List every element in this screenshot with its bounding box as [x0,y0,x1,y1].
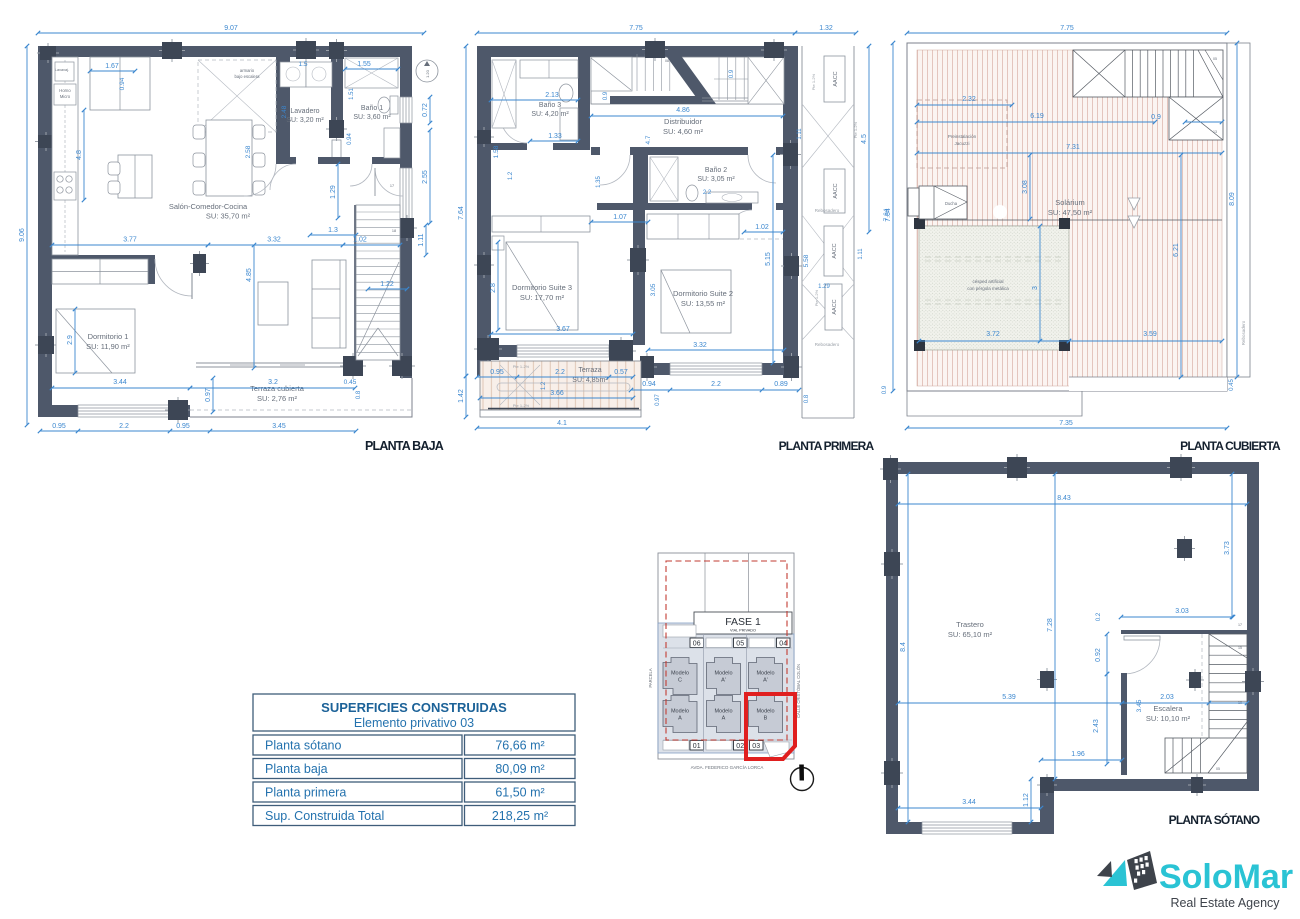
svg-text:Real Estate Agency: Real Estate Agency [1170,896,1280,910]
svg-text:0.94: 0.94 [642,381,656,388]
svg-text:4.86: 4.86 [676,107,690,114]
svg-text:1.33: 1.33 [548,133,562,140]
svg-text:1.42: 1.42 [458,389,465,403]
svg-text:1.2: 1.2 [541,381,547,390]
svg-text:0.8: 0.8 [804,394,810,403]
svg-text:3.67: 3.67 [556,326,570,333]
svg-text:CALLE CRISTÓBAL COLÓN: CALLE CRISTÓBAL COLÓN [796,664,801,718]
svg-text:AACC: AACC [832,243,838,258]
svg-text:3.59: 3.59 [1143,331,1157,338]
svg-text:2.8: 2.8 [490,283,497,293]
svg-text:Dormitorio Suite 3: Dormitorio Suite 3 [512,283,572,292]
svg-text:80,09 m²: 80,09 m² [495,762,544,776]
svg-text:3.2: 3.2 [268,379,278,386]
svg-text:3.72: 3.72 [986,331,1000,338]
svg-text:bajo escalera: bajo escalera [235,74,261,79]
svg-text:4.8: 4.8 [76,150,83,160]
svg-text:218,25 m²: 218,25 m² [492,809,548,823]
svg-text:1.29: 1.29 [818,284,830,290]
svg-text:8.4: 8.4 [900,642,907,652]
svg-text:A': A' [721,678,726,684]
svg-text:1.11: 1.11 [797,128,803,140]
svg-text:3.44: 3.44 [962,799,976,806]
svg-text:7.75: 7.75 [629,25,643,32]
svg-text:Terraza: Terraza [578,367,601,374]
svg-text:0.9: 0.9 [882,385,888,394]
svg-text:Pte 1-2%: Pte 1-2% [853,121,858,138]
svg-text:2.32: 2.32 [962,96,976,103]
svg-text:1.20: 1.20 [425,69,430,78]
svg-text:Salón-Comedor-Cocina: Salón-Comedor-Cocina [169,202,248,211]
svg-text:8.09: 8.09 [1229,192,1236,206]
svg-text:AACC: AACC [832,299,838,314]
svg-text:0.9: 0.9 [603,91,609,100]
svg-text:1.02: 1.02 [353,237,367,244]
svg-text:Modelo: Modelo [671,671,689,677]
svg-text:Baño 1: Baño 1 [361,105,383,112]
svg-text:C: C [678,678,682,684]
svg-text:2.55: 2.55 [422,170,429,184]
svg-text:0.45: 0.45 [344,379,357,386]
svg-text:3.77: 3.77 [123,237,137,244]
svg-text:4.1: 4.1 [557,420,567,427]
svg-text:0.9: 0.9 [729,69,735,78]
svg-text:1.55: 1.55 [357,61,371,68]
svg-text:02: 02 [736,743,744,750]
svg-text:con pérgola metálica: con pérgola metálica [967,286,1009,291]
svg-text:03: 03 [752,743,760,750]
svg-text:1.11: 1.11 [858,248,864,260]
svg-text:PLANTA SÓTANO: PLANTA SÓTANO [1169,812,1260,827]
svg-text:PLANTA CUBIERTA: PLANTA CUBIERTA [1180,439,1281,453]
svg-text:3: 3 [1032,286,1039,290]
svg-text:0.94: 0.94 [119,77,126,90]
svg-text:1.35: 1.35 [596,176,602,188]
svg-text:1.2: 1.2 [508,171,514,180]
svg-text:Sup. Construida Total: Sup. Construida Total [265,809,384,823]
svg-text:0.97: 0.97 [205,388,212,402]
svg-text:5.39: 5.39 [1002,694,1016,701]
svg-text:SU: 13,55 m²: SU: 13,55 m² [681,299,726,308]
svg-text:2.2: 2.2 [711,381,721,388]
svg-text:Baño 3: Baño 3 [539,102,561,109]
svg-text:SUPERFICIES CONSTRUIDAS: SUPERFICIES CONSTRUIDAS [321,700,507,715]
svg-text:7.35: 7.35 [1059,420,1073,427]
svg-text:2.2: 2.2 [555,369,565,376]
svg-text:4.5: 4.5 [861,134,868,144]
svg-text:3.05: 3.05 [650,283,657,296]
svg-text:A': A' [763,678,768,684]
svg-text:Lavavaj.: Lavavaj. [55,68,69,72]
svg-text:AACC: AACC [833,71,839,86]
svg-text:Elemento privativo 03: Elemento privativo 03 [354,716,474,730]
svg-text:Trastero: Trastero [956,620,984,629]
svg-text:76,66 m²: 76,66 m² [495,739,544,753]
svg-text:SU: 4,20 m²: SU: 4,20 m² [531,111,569,118]
svg-text:3.32: 3.32 [693,342,707,349]
svg-text:1.32: 1.32 [819,25,833,32]
svg-text:A: A [722,716,726,722]
svg-text:0.94: 0.94 [347,133,353,145]
svg-text:05: 05 [736,641,744,648]
svg-text:Escalera: Escalera [1153,704,1183,713]
svg-text:Planta baja: Planta baja [265,762,328,776]
svg-text:1.12: 1.12 [1023,793,1030,807]
svg-text:3.44: 3.44 [113,379,127,386]
svg-text:15: 15 [1238,646,1242,650]
svg-text:Ducha: Ducha [945,201,958,206]
svg-text:2.13: 2.13 [545,92,559,99]
svg-text:armario: armario [240,68,255,73]
svg-text:Pte 1-2%: Pte 1-2% [811,73,816,90]
svg-text:Preinstalación: Preinstalación [948,134,977,139]
svg-text:6.21: 6.21 [1173,243,1180,257]
svg-text:04: 04 [779,641,787,648]
svg-text:Solárium: Solárium [1055,198,1085,207]
svg-text:9.07: 9.07 [224,25,238,32]
svg-text:VIAL PRIVADO: VIAL PRIVADO [730,629,756,633]
svg-text:Micro: Micro [60,94,71,99]
svg-text:SU: 4,85m²: SU: 4,85m² [572,377,608,384]
svg-text:3.03: 3.03 [1175,608,1189,615]
svg-text:Planta primera: Planta primera [265,786,346,800]
svg-text:1.58: 1.58 [493,145,500,158]
svg-text:1.67: 1.67 [105,63,119,70]
svg-text:0.8: 0.8 [356,390,362,399]
svg-text:17: 17 [1238,623,1242,627]
svg-text:Modelo: Modelo [671,709,689,715]
svg-text:05: 05 [1213,57,1217,61]
svg-text:13: 13 [1213,130,1217,134]
svg-text:Pte 1-2%: Pte 1-2% [513,364,530,369]
svg-text:AVDA. FEDERICO GARCÍA LORCA: AVDA. FEDERICO GARCÍA LORCA [691,764,764,770]
svg-text:6.19: 6.19 [1030,113,1044,120]
svg-text:Modelo: Modelo [714,709,732,715]
svg-text:2.9: 2.9 [67,335,74,345]
svg-text:2.2: 2.2 [703,190,712,196]
svg-text:5.15: 5.15 [765,252,772,266]
svg-text:SU: 3,60 m²: SU: 3,60 m² [353,114,391,121]
svg-text:SU: 35,70 m²: SU: 35,70 m² [206,212,251,221]
svg-text:17: 17 [390,184,394,188]
svg-text:Pte 1-2%: Pte 1-2% [513,403,530,408]
svg-text:Pte 1-2%: Pte 1-2% [814,289,819,306]
svg-text:Baño 2: Baño 2 [705,167,727,174]
svg-text:2.03: 2.03 [1160,694,1174,701]
svg-text:1.11: 1.11 [418,233,425,246]
svg-text:Horno: Horno [59,88,71,93]
svg-text:Planta sótano: Planta sótano [265,739,341,753]
svg-text:Lavadero: Lavadero [290,108,319,115]
svg-text:SU: 4,60 m²: SU: 4,60 m² [663,127,704,136]
svg-text:3.45: 3.45 [272,423,286,430]
svg-text:1.5: 1.5 [298,61,307,68]
svg-text:01: 01 [693,743,701,750]
svg-text:Modelo: Modelo [714,671,732,677]
svg-text:2.58: 2.58 [245,145,252,158]
svg-text:FASE 1: FASE 1 [725,616,761,628]
svg-text:césped artificial: césped artificial [972,279,1003,284]
svg-text:7.28: 7.28 [1047,618,1054,632]
svg-text:0.57: 0.57 [614,369,628,376]
svg-text:Modelo: Modelo [756,709,774,715]
svg-text:PARCELA: PARCELA [648,668,653,687]
svg-text:Modelo: Modelo [756,671,774,677]
svg-text:8.43: 8.43 [1057,495,1071,502]
svg-text:1.51: 1.51 [349,88,355,100]
svg-text:2.2: 2.2 [119,423,129,430]
svg-text:PLANTA PRIMERA: PLANTA PRIMERA [779,439,875,453]
svg-text:0.95: 0.95 [490,369,504,376]
svg-text:SU: 65,10 m²: SU: 65,10 m² [948,630,993,639]
svg-text:Rebosadero: Rebosadero [1241,320,1246,345]
svg-text:05: 05 [1216,767,1220,771]
svg-text:7.64: 7.64 [885,208,892,222]
svg-text:61,50 m²: 61,50 m² [495,786,544,800]
svg-text:0.2: 0.2 [1096,612,1102,621]
svg-text:SoloMar: SoloMar [1159,858,1293,896]
svg-text:7.75: 7.75 [1060,25,1074,32]
svg-text:SU: 11,90 m²: SU: 11,90 m² [86,342,130,351]
svg-text:0.9: 0.9 [1151,114,1161,121]
svg-text:Jacuzzi: Jacuzzi [954,141,969,146]
svg-text:08: 08 [665,59,669,63]
svg-text:SU: 17,70 m²: SU: 17,70 m² [520,293,565,302]
svg-text:0.72: 0.72 [422,103,429,117]
svg-text:1.29: 1.29 [330,185,337,199]
svg-text:AACC: AACC [833,183,839,198]
svg-text:1.07: 1.07 [613,214,627,221]
svg-text:Distribuidor: Distribuidor [664,117,702,126]
svg-text:5.58: 5.58 [803,254,810,267]
svg-text:SU: 3,05 m²: SU: 3,05 m² [697,176,735,183]
svg-text:1.3: 1.3 [328,227,338,234]
svg-text:18: 18 [392,229,396,233]
svg-text:4.7: 4.7 [645,135,652,144]
svg-text:1.22: 1.22 [380,281,394,288]
svg-text:3.66: 3.66 [550,390,564,397]
svg-text:Rebosadero: Rebosadero [815,208,840,213]
svg-text:PLANTA BAJA: PLANTA BAJA [365,439,444,453]
svg-text:2.48: 2.48 [281,105,288,118]
svg-text:Dormitorio Suite 2: Dormitorio Suite 2 [673,289,733,298]
svg-text:2.43: 2.43 [1093,719,1100,733]
svg-text:SU: 10,10 m²: SU: 10,10 m² [1146,714,1191,723]
svg-text:0.89: 0.89 [774,381,788,388]
svg-text:SU: 3,20 m²: SU: 3,20 m² [286,117,324,124]
svg-text:1.02: 1.02 [755,224,769,231]
svg-text:0.95: 0.95 [52,423,66,430]
svg-text:SU: 2,76 m²: SU: 2,76 m² [257,394,298,403]
svg-text:4.85: 4.85 [246,268,253,282]
svg-text:Dormitorio 1: Dormitorio 1 [88,332,129,341]
svg-text:9.06: 9.06 [19,228,26,242]
svg-text:3.32: 3.32 [267,237,281,244]
svg-text:A: A [678,716,682,722]
svg-text:SU: 47,50 m²: SU: 47,50 m² [1048,208,1093,217]
svg-text:B: B [764,716,768,722]
svg-text:7.64: 7.64 [458,206,465,220]
svg-text:06: 06 [693,641,701,648]
svg-text:Rebosadero: Rebosadero [815,342,840,347]
svg-text:0.95: 0.95 [176,423,190,430]
svg-text:3.45: 3.45 [1136,699,1143,712]
svg-text:7.31: 7.31 [1066,144,1080,151]
svg-text:3.73: 3.73 [1224,541,1231,555]
svg-text:0.92: 0.92 [1095,648,1102,662]
svg-text:0.97: 0.97 [655,394,661,406]
svg-text:0.45: 0.45 [1229,379,1235,391]
svg-text:1.96: 1.96 [1071,751,1085,758]
svg-text:3.08: 3.08 [1022,180,1029,194]
